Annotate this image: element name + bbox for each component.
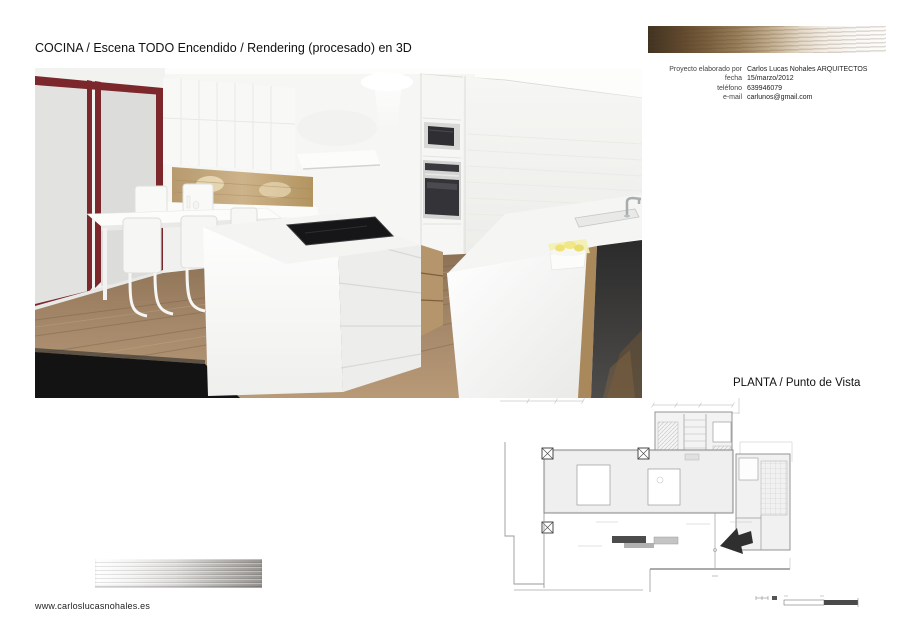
info-row-email: e-mail carlunos@gmail.com [650,93,886,102]
wood-texture-bar [648,26,886,53]
vase [187,196,190,208]
info-row-date: fecha 15/marzo/2012 [650,74,886,83]
table-leg [103,228,107,300]
plan-title: PLANTA / Punto de Vista [733,377,860,389]
floor-plan [500,398,860,628]
kitchen-island [203,213,443,396]
lemons-bowl [548,239,590,270]
island-shelf [421,245,443,336]
page-title: COCINA / Escena TODO Encendido / Renderi… [35,41,412,55]
vase [193,201,199,209]
door-glass-left [35,82,87,304]
info-label: teléfono [650,84,742,93]
presentation-sheet: COCINA / Escena TODO Encendido / Renderi… [0,0,900,636]
info-label: Proyecto elaborado por [650,65,742,74]
door-frame-stile [95,81,101,288]
info-value: Carlos Lucas Nohales ARQUITECTOS [747,65,867,74]
info-value: carlunos@gmail.com [747,93,812,102]
website-url: www.carloslucasnohales.es [35,601,150,611]
door-frame-stile [87,80,92,294]
microwave [424,122,460,150]
plan-island [577,465,610,505]
kitchen-render [35,68,642,398]
project-info: Proyecto elaborado por Carlos Lucas Noha… [650,65,886,103]
chair-back [135,186,167,214]
info-label: e-mail [650,93,742,102]
info-value: 15/marzo/2012 [747,74,794,83]
peninsula-face [447,248,587,398]
info-label: fecha [650,74,742,83]
silver-texture-bar [95,559,262,588]
scale-bar [756,596,858,607]
info-row-phone: teléfono 639946079 [650,84,886,93]
oven [423,160,461,220]
upper-cabinets [163,78,295,172]
plan-table [648,469,680,505]
info-value: 639946079 [747,84,782,93]
info-row-author: Proyecto elaborado por Carlos Lucas Noha… [650,65,886,74]
faucet-base [624,215,630,218]
